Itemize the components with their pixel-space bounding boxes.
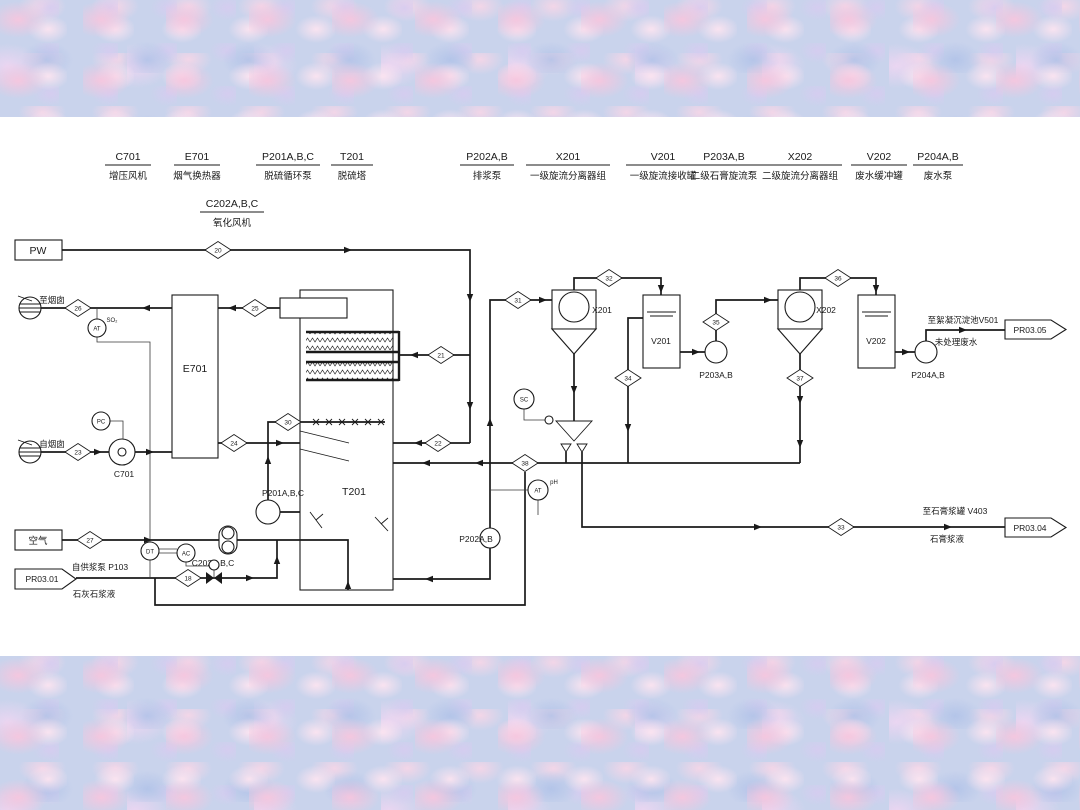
svg-text:PR03.05: PR03.05 bbox=[1013, 325, 1046, 335]
pump-p201: P201A,B,C bbox=[256, 488, 304, 524]
svg-text:P202A,B: P202A,B bbox=[466, 151, 507, 163]
svg-text:AC: AC bbox=[182, 552, 191, 558]
stream-diamond-26: 26 bbox=[65, 300, 91, 317]
p204-label: P204A,B bbox=[911, 370, 945, 380]
svg-text:V202: V202 bbox=[867, 151, 892, 163]
svg-text:P201A,B,C: P201A,B,C bbox=[262, 151, 314, 163]
legend-item-x202: X202二级旋流分离器组 bbox=[758, 151, 842, 182]
from-stack-label: 自烟囱 bbox=[39, 439, 65, 449]
x202-label: X202 bbox=[816, 305, 836, 315]
legend-item-p202: P202A,B排浆泵 bbox=[460, 151, 514, 182]
svg-text:25: 25 bbox=[251, 305, 259, 312]
absorber-tower-t201: T201 bbox=[280, 290, 399, 590]
legend-item-v201: V201一级旋流接收罐 bbox=[626, 151, 700, 182]
c701-label: C701 bbox=[114, 469, 135, 479]
stream-diamond-35: 35 bbox=[703, 314, 729, 331]
process-water-line bbox=[62, 250, 470, 443]
stream-diamond-31: 31 bbox=[505, 292, 531, 309]
slurry-splitter bbox=[556, 421, 592, 452]
svg-text:脱硫塔: 脱硫塔 bbox=[338, 170, 367, 182]
svg-text:PR03.04: PR03.04 bbox=[1013, 523, 1046, 533]
legend-item-p204: P204A,B废水泵 bbox=[913, 151, 963, 182]
to-floc-label: 至絮凝沉淀池V501 bbox=[928, 315, 999, 325]
e701-label: E701 bbox=[183, 363, 208, 375]
circulation-line bbox=[268, 422, 300, 512]
svg-text:33: 33 bbox=[837, 524, 845, 531]
x201-label: X201 bbox=[592, 305, 612, 315]
mist-eliminator-bank-1 bbox=[306, 333, 393, 351]
legend-item-v202: V202废水缓冲罐 bbox=[851, 151, 907, 182]
legend-item-c202: C202A,B,C氧化风机 bbox=[200, 198, 264, 229]
svg-text:T201: T201 bbox=[340, 151, 364, 163]
svg-text:24: 24 bbox=[230, 440, 238, 447]
svg-text:DT: DT bbox=[146, 550, 154, 556]
slide: C701增压风机 E701烟气换热器 P201A,B,C脱硫循环泵 T201脱硫… bbox=[0, 0, 1080, 810]
instrument-pc: PC bbox=[92, 412, 110, 430]
stream-diamond-18: 18 bbox=[175, 570, 201, 587]
svg-text:SC: SC bbox=[520, 398, 529, 404]
svg-text:C202A,B,C: C202A,B,C bbox=[206, 198, 259, 210]
svg-text:31: 31 bbox=[514, 297, 522, 304]
equipment-legend: C701增压风机 E701烟气换热器 P201A,B,C脱硫循环泵 T201脱硫… bbox=[105, 151, 963, 229]
svg-text:C701: C701 bbox=[115, 151, 140, 163]
to-gypsum-tank-label: 至石膏浆罐 V403 bbox=[923, 506, 988, 516]
stream-diamond-27: 27 bbox=[77, 532, 103, 549]
svg-text:21: 21 bbox=[437, 352, 445, 359]
stream-diamond-25: 25 bbox=[242, 300, 268, 317]
svg-text:37: 37 bbox=[796, 375, 804, 382]
svg-text:26: 26 bbox=[74, 305, 82, 312]
instrument-at-so2: AT SO₂ bbox=[88, 318, 118, 337]
svg-text:废水缓冲罐: 废水缓冲罐 bbox=[855, 170, 903, 182]
stack-to: 至烟囱 bbox=[18, 295, 65, 319]
svg-text:氧化风机: 氧化风机 bbox=[213, 217, 252, 229]
svg-text:30: 30 bbox=[284, 419, 292, 426]
gypsum-slurry-label: 石膏浆液 bbox=[930, 534, 965, 544]
pump-p203: P203A,B bbox=[699, 341, 733, 380]
legend-item-p201: P201A,B,C脱硫循环泵 bbox=[256, 151, 320, 182]
gas-heat-exchanger-e701: E701 bbox=[172, 295, 218, 458]
svg-text:36: 36 bbox=[834, 275, 842, 282]
svg-text:PR03.01: PR03.01 bbox=[25, 574, 58, 584]
svg-text:34: 34 bbox=[624, 375, 632, 382]
svg-text:32: 32 bbox=[605, 275, 613, 282]
svg-text:V201: V201 bbox=[651, 151, 676, 163]
legend-item-t201: T201脱硫塔 bbox=[331, 151, 373, 182]
tower-outlet-duct bbox=[280, 298, 347, 318]
stream-diamond-30: 30 bbox=[275, 414, 301, 431]
svg-text:排浆泵: 排浆泵 bbox=[473, 170, 502, 182]
mist-eliminator-bank-2 bbox=[306, 363, 393, 379]
tank-v202: V202 bbox=[858, 295, 895, 368]
svg-text:X202: X202 bbox=[788, 151, 813, 163]
svg-text:烟气换热器: 烟气换热器 bbox=[173, 170, 221, 182]
legend-item-c701: C701增压风机 bbox=[105, 151, 151, 182]
v202-label: V202 bbox=[866, 336, 886, 346]
svg-text:38: 38 bbox=[521, 460, 529, 467]
stack-from: 自烟囱 bbox=[18, 439, 65, 463]
tank-v201: V201 bbox=[643, 295, 680, 368]
p202-label: P202A,B bbox=[459, 534, 493, 544]
legend-item-x201: X201一级旋流分离器组 bbox=[526, 151, 610, 182]
stream-diamond-36: 36 bbox=[825, 270, 851, 287]
from-pump-label: 自供浆泵 P103 bbox=[72, 562, 128, 572]
svg-text:增压风机: 增压风机 bbox=[109, 170, 148, 182]
svg-text:一级旋流分离器组: 一级旋流分离器组 bbox=[530, 170, 607, 182]
stream-diamond-32: 32 bbox=[596, 270, 622, 287]
svg-text:20: 20 bbox=[214, 247, 222, 254]
svg-text:一级旋流接收罐: 一级旋流接收罐 bbox=[630, 170, 697, 182]
stream-diamond-22: 22 bbox=[425, 435, 451, 452]
svg-text:P204A,B: P204A,B bbox=[917, 151, 958, 163]
instrument-at-ph: AT pH bbox=[528, 480, 558, 500]
svg-text:P203A,B: P203A,B bbox=[703, 151, 744, 163]
ph-label: pH bbox=[550, 480, 558, 486]
tower-label: T201 bbox=[342, 486, 366, 498]
p201-label: P201A,B,C bbox=[262, 488, 304, 498]
svg-text:22: 22 bbox=[434, 440, 442, 447]
stream-diamond-23: 23 bbox=[65, 444, 91, 461]
svg-text:废水泵: 废水泵 bbox=[924, 170, 953, 182]
stream-diamond-34: 34 bbox=[615, 370, 641, 387]
booster-fan-c701: C701 bbox=[109, 439, 135, 479]
stream-diamond-37: 37 bbox=[787, 370, 813, 387]
legend-item-p203: P203A,B二级石膏旋流泵 bbox=[688, 151, 760, 182]
instrument-ac: AC bbox=[177, 544, 195, 562]
untreated-label: 未处理废水 bbox=[935, 337, 978, 347]
air-label: 空气 bbox=[28, 535, 48, 547]
so2-label: SO₂ bbox=[107, 318, 119, 324]
stream-diamond-33: 33 bbox=[828, 519, 854, 536]
p203-label: P203A,B bbox=[699, 370, 733, 380]
svg-text:二级旋流分离器组: 二级旋流分离器组 bbox=[762, 170, 839, 182]
svg-text:AT: AT bbox=[93, 327, 101, 333]
stream-diamond-24: 24 bbox=[221, 435, 247, 452]
svg-text:PC: PC bbox=[97, 420, 106, 426]
stream-diamond-38: 38 bbox=[512, 455, 538, 472]
pfd-diagram: C701增压风机 E701烟气换热器 P201A,B,C脱硫循环泵 T201脱硫… bbox=[0, 0, 1080, 810]
stream-diamond-20: 20 bbox=[205, 242, 231, 259]
svg-text:二级石膏旋流泵: 二级石膏旋流泵 bbox=[691, 170, 758, 182]
svg-text:脱硫循环泵: 脱硫循环泵 bbox=[264, 170, 312, 182]
cyclone-x201: X201 bbox=[552, 290, 612, 354]
svg-text:23: 23 bbox=[74, 449, 82, 456]
svg-text:AT: AT bbox=[534, 489, 542, 495]
v201-label: V201 bbox=[651, 336, 671, 346]
stream-diamond-21: 21 bbox=[428, 347, 454, 364]
pw-label: PW bbox=[30, 245, 47, 257]
svg-text:35: 35 bbox=[712, 319, 720, 326]
instrument-sc: SC bbox=[514, 389, 534, 409]
legend-item-e701: E701烟气换热器 bbox=[173, 151, 221, 182]
svg-text:X201: X201 bbox=[556, 151, 581, 163]
to-stack-label: 至烟囱 bbox=[39, 295, 65, 305]
cyclone-x202: X202 bbox=[778, 290, 836, 354]
svg-text:18: 18 bbox=[184, 575, 192, 582]
svg-text:E701: E701 bbox=[185, 151, 210, 163]
svg-text:27: 27 bbox=[86, 537, 94, 544]
instrument-dt: DT bbox=[141, 542, 159, 560]
pump-p202: P202A,B bbox=[459, 528, 500, 548]
limestone-label: 石灰石浆液 bbox=[73, 589, 116, 599]
limestone-slurry-line bbox=[76, 540, 277, 578]
